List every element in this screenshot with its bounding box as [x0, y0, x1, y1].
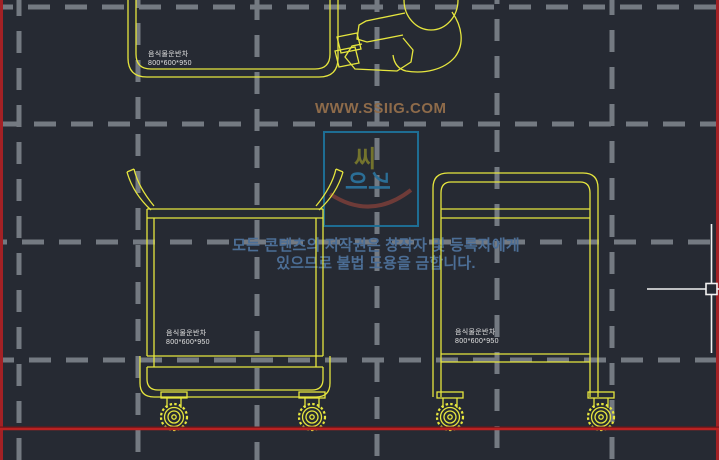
plan-view-cart-drawing[interactable]: [128, 0, 338, 77]
copyright-line-1: 모든 콘텐츠의 저작권은 창작자 및 등록자에게: [20, 237, 719, 255]
cart-label-size: 800*600*950: [455, 337, 499, 346]
cart-label-name: 음식물운반차: [455, 328, 499, 337]
cart-label-plan-view[interactable]: 음식물운반차 800*600*950: [148, 50, 192, 68]
stamp-side-chars: 이기: [347, 165, 401, 191]
copyright-notice: 모든 콘텐츠의 저작권은 창작자 및 등록자에게 있으므로 불법 도용을 금합니…: [20, 237, 719, 272]
sheet-border-lines[interactable]: [0, 0, 719, 460]
crosshair-cursor: [647, 224, 719, 353]
cart-label-name: 음식물운반차: [148, 50, 192, 59]
person-figure-drawing[interactable]: [335, 0, 461, 72]
viewport-background: [0, 0, 719, 460]
stamp-side-char-1: 이: [341, 171, 373, 191]
cad-drawing-viewport[interactable]: WWW.SSIIG.COM 씨 이기 모든 콘텐츠의 저작권은 창작자 및 등록…: [0, 0, 719, 460]
stamp-smile-arc-icon: [325, 133, 417, 225]
front-view-cart-drawing[interactable]: [127, 169, 343, 430]
cart-label-name: 음식물운반차: [166, 329, 210, 338]
cart-label-side-view[interactable]: 음식물운반차 800*600*950: [455, 328, 499, 346]
stamp-logo: 씨 이기: [323, 131, 419, 227]
drawing-layer: [0, 0, 719, 460]
watermark-text: WWW.SSIIG.COM: [315, 100, 447, 117]
stamp-top-char: 씨: [354, 139, 376, 174]
cart-label-size: 800*600*950: [148, 59, 192, 68]
copyright-line-2: 있으므로 불법 도용을 금합니다.: [20, 255, 719, 273]
cart-label-front-view[interactable]: 음식물운반차 800*600*950: [166, 329, 210, 347]
label-layer: 음식물운반차 800*600*950 음식물운반차 800*600*950 음식…: [0, 0, 719, 460]
grid-layer: [0, 0, 719, 460]
stamp-side-char-2: 기: [364, 171, 396, 191]
grid-dashed-lines[interactable]: [0, 0, 719, 460]
pickbox: [706, 284, 717, 295]
side-view-cart-drawing[interactable]: [433, 173, 614, 430]
watermark-layer: WWW.SSIIG.COM 씨 이기 모든 콘텐츠의 저작권은 창작자 및 등록…: [0, 0, 719, 460]
cart-label-size: 800*600*950: [166, 338, 210, 347]
